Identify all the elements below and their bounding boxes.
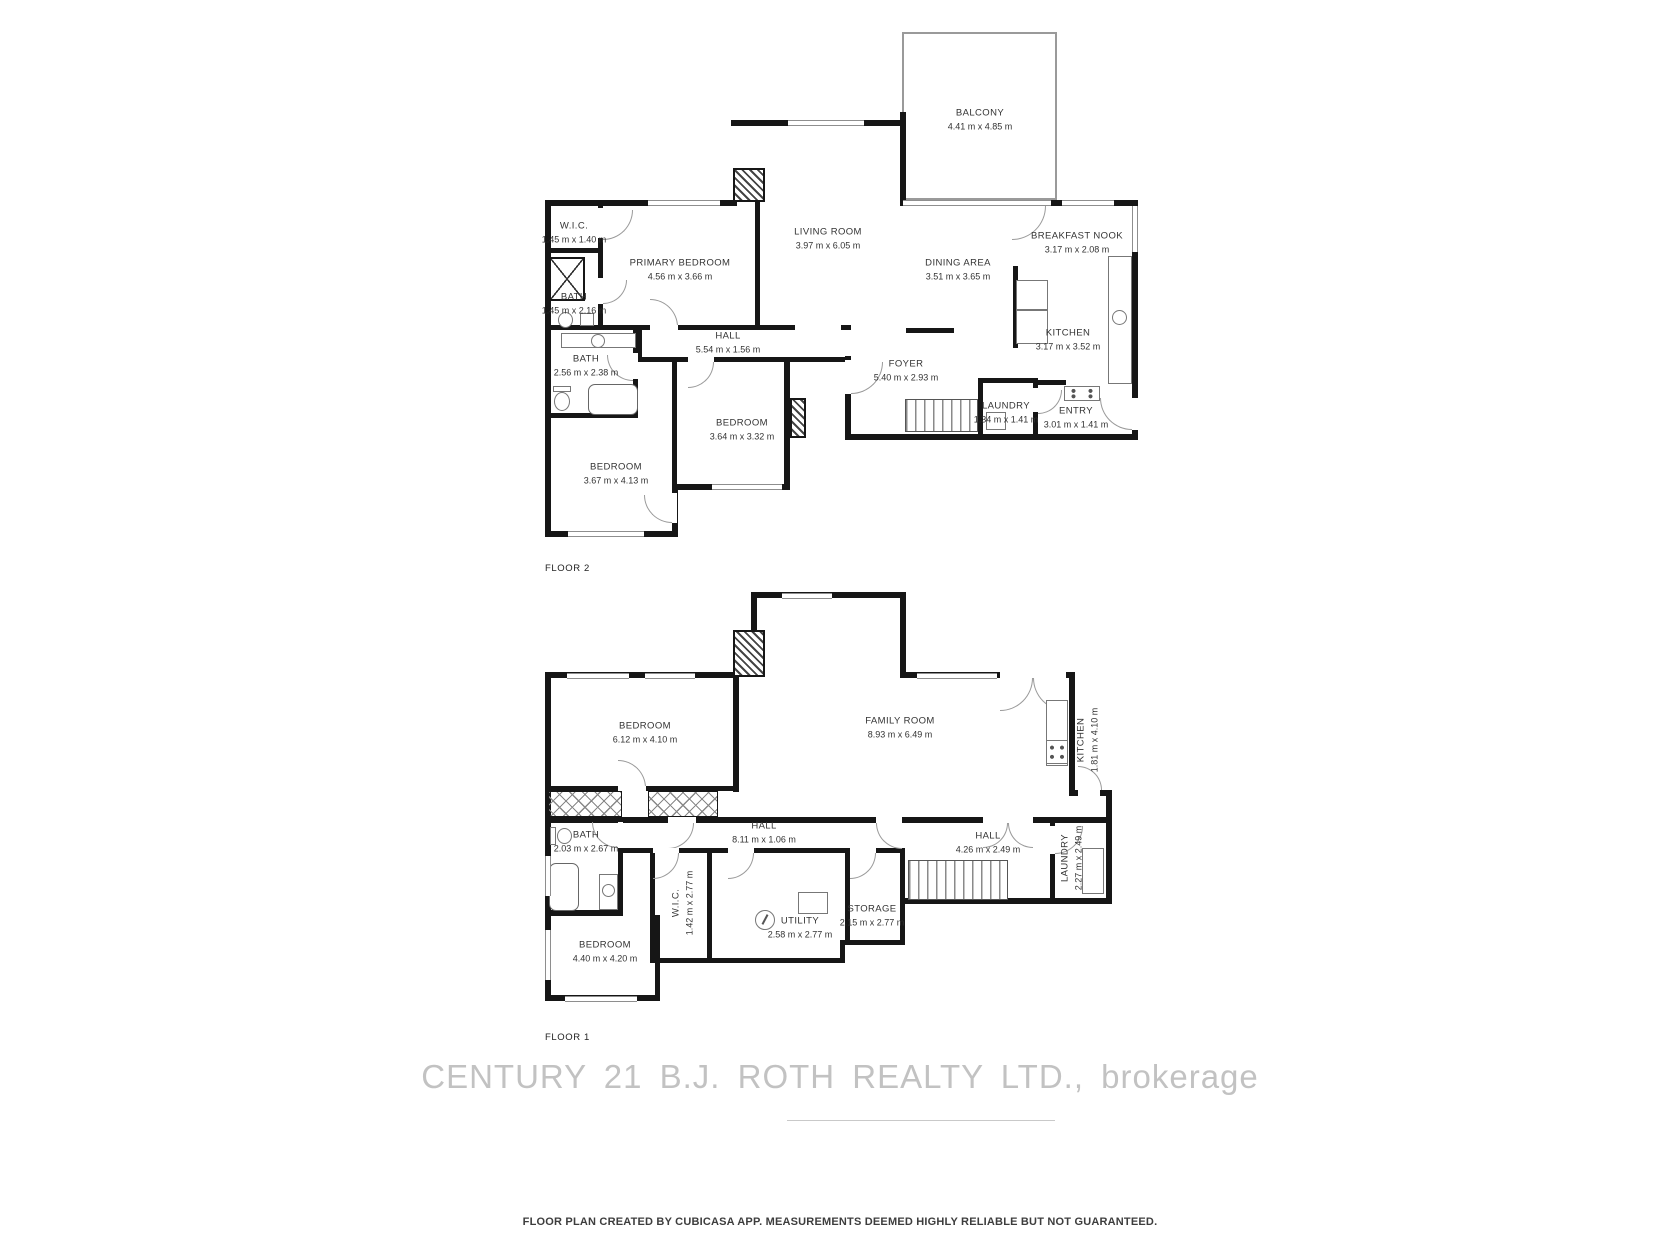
- door-opening: [688, 357, 714, 362]
- wall: [637, 357, 850, 362]
- door-arc: [603, 280, 627, 304]
- door-opening: [845, 360, 851, 394]
- door-opening: [1000, 672, 1066, 678]
- room-label: BREAKFAST NOOK 3.17 m x 2.08 m: [1031, 230, 1123, 257]
- door-opening: [672, 493, 677, 523]
- sink: [1112, 310, 1127, 325]
- door-arc: [603, 210, 633, 240]
- room-name: BATH: [542, 291, 607, 305]
- room-dims: 8.11 m x 1.06 m: [732, 833, 796, 846]
- room-label: BATH 2.03 m x 2.67 m: [554, 829, 619, 856]
- room-name: BEDROOM: [710, 417, 775, 431]
- stove: [1064, 386, 1100, 401]
- room-dims: 5.54 m x 1.56 m: [696, 343, 761, 356]
- wall: [650, 958, 845, 963]
- room-label: W.I.C. 1.42 m x 2.77 m: [670, 871, 697, 936]
- room-label: BEDROOM 3.64 m x 3.32 m: [710, 417, 775, 444]
- door-opening: [668, 817, 696, 823]
- room-dims: 1.81 m x 4.10 m: [1088, 708, 1101, 773]
- door-opening: [650, 325, 678, 330]
- room-name: BEDROOM: [573, 939, 638, 953]
- door-opening: [618, 786, 646, 791]
- room-name: BEDROOM: [613, 720, 678, 734]
- utility-box: [798, 892, 828, 914]
- room-name: FAMILY ROOM: [865, 715, 935, 729]
- room-dims: 1.45 m x 2.16 m: [542, 304, 607, 317]
- window: [782, 593, 832, 599]
- room-label: HALL 8.11 m x 1.06 m: [732, 820, 796, 847]
- room-dims: 1.34 m x 1.41 m: [974, 413, 1039, 426]
- door-opening: [618, 822, 623, 848]
- window: [568, 531, 644, 537]
- window: [788, 120, 864, 126]
- room-label: LAUNDRY 1.34 m x 1.41 m: [974, 400, 1039, 427]
- wall: [545, 248, 603, 253]
- window: [545, 856, 551, 896]
- room-name: LIVING ROOM: [794, 226, 862, 240]
- wall: [707, 848, 712, 963]
- room-name: BREAKFAST NOOK: [1031, 230, 1123, 244]
- window: [917, 673, 997, 679]
- room-name: LAUNDRY: [1059, 826, 1073, 891]
- room-name: PRIMARY BEDROOM: [630, 257, 731, 271]
- room-dims: 3.01 m x 1.41 m: [1044, 418, 1109, 431]
- door-opening: [983, 817, 1033, 823]
- window: [645, 673, 695, 679]
- door-arc: [876, 823, 902, 849]
- room-label: HALL 4.26 m x 2.49 m: [956, 830, 1021, 857]
- room-label: BATH 1.45 m x 2.16 m: [542, 291, 607, 318]
- wall: [900, 112, 906, 206]
- room-label: LIVING ROOM 3.97 m x 6.05 m: [794, 226, 862, 253]
- chimney-hatch: [733, 630, 765, 677]
- door-arc: [728, 853, 754, 879]
- floor-2-label: FLOOR 2: [545, 563, 590, 574]
- closet: [648, 791, 718, 817]
- room-dims: 5.40 m x 2.93 m: [874, 371, 939, 384]
- wall: [672, 362, 677, 487]
- brokerage-watermark: CENTURY 21 B.J. ROTH REALTY LTD., broker…: [421, 1058, 1259, 1096]
- door-arc: [668, 823, 694, 849]
- door-arc: [618, 760, 646, 788]
- room-name: BALCONY: [948, 107, 1013, 121]
- room-dims: 2.15 m x 2.77 m: [840, 916, 905, 929]
- room-name: HALL: [696, 330, 761, 344]
- door-opening: [728, 848, 754, 853]
- room-name: LAUNDRY: [974, 400, 1039, 414]
- wall: [978, 378, 1038, 383]
- wall: [733, 672, 739, 792]
- room-dims: 8.93 m x 6.49 m: [865, 728, 935, 741]
- door-opening: [1050, 826, 1055, 854]
- floor-1-label: FLOOR 1: [545, 1032, 590, 1043]
- room-label: PRIMARY BEDROOM 4.56 m x 3.66 m: [630, 257, 731, 284]
- window: [1132, 206, 1138, 252]
- room-name: W.I.C.: [670, 871, 684, 936]
- room-name: DINING AREA: [925, 257, 991, 271]
- floorplan-canvas: BALCONY 4.41 m x 4.85 m W.I.C. 1.45 m x …: [0, 0, 1680, 1260]
- sink: [602, 884, 615, 897]
- room-label: ENTRY 3.01 m x 1.41 m: [1044, 405, 1109, 432]
- room-name: UTILITY: [768, 915, 833, 929]
- room-dims: 2.27 m x 2.49 m: [1072, 826, 1085, 891]
- door-opening: [795, 325, 841, 330]
- door-opening: [633, 353, 638, 379]
- room-name: BATH: [554, 829, 619, 843]
- wall: [1106, 790, 1112, 904]
- stairs: [908, 860, 1008, 900]
- room-dims: 3.64 m x 3.32 m: [710, 430, 775, 443]
- room-name: ENTRY: [1044, 405, 1109, 419]
- room-label: LAUNDRY 2.27 m x 2.49 m: [1059, 826, 1086, 891]
- wall: [906, 328, 954, 333]
- room-label: KITCHEN 1.81 m x 4.10 m: [1075, 708, 1102, 773]
- room-dims: 3.17 m x 2.08 m: [1031, 243, 1123, 256]
- room-label: FAMILY ROOM 8.93 m x 6.49 m: [865, 715, 935, 742]
- room-label: BALCONY 4.41 m x 4.85 m: [948, 107, 1013, 134]
- window: [648, 200, 720, 206]
- room-label: STORAGE 2.15 m x 2.77 m: [840, 903, 905, 930]
- window: [567, 673, 629, 679]
- window: [545, 930, 551, 980]
- room-label: BEDROOM 6.12 m x 4.10 m: [613, 720, 678, 747]
- fridge: [1016, 280, 1048, 310]
- wall: [755, 200, 760, 327]
- stairs: [905, 399, 978, 432]
- room-dims: 6.12 m x 4.10 m: [613, 733, 678, 746]
- door-arc: [850, 853, 876, 879]
- room-label: W.I.C. 1.45 m x 1.40 m: [542, 220, 607, 247]
- room-name: W.I.C.: [542, 220, 607, 234]
- sink: [591, 334, 605, 348]
- door-opening: [1078, 790, 1100, 796]
- room-dims: 3.67 m x 4.13 m: [584, 474, 649, 487]
- room-dims: 4.41 m x 4.85 m: [948, 120, 1013, 133]
- window: [903, 200, 1051, 206]
- door-opening: [1132, 398, 1138, 430]
- room-dims: 3.51 m x 3.65 m: [925, 270, 991, 283]
- room-name: KITCHEN: [1036, 327, 1101, 341]
- room-dims: 3.97 m x 6.05 m: [794, 239, 862, 252]
- door-arc: [650, 299, 678, 327]
- window: [565, 996, 637, 1002]
- room-name: KITCHEN: [1075, 708, 1089, 773]
- wall: [845, 940, 905, 945]
- room-label: BEDROOM 3.67 m x 4.13 m: [584, 461, 649, 488]
- door-opening: [653, 848, 679, 853]
- room-dims: 1.42 m x 2.77 m: [683, 871, 696, 936]
- wall: [900, 592, 906, 678]
- room-name: STORAGE: [840, 903, 905, 917]
- room-dims: 2.03 m x 2.67 m: [554, 842, 619, 855]
- room-name: HALL: [956, 830, 1021, 844]
- room-name: BEDROOM: [584, 461, 649, 475]
- room-label: UTILITY 2.58 m x 2.77 m: [768, 915, 833, 942]
- room-dims: 2.56 m x 2.38 m: [554, 366, 619, 379]
- door-arc: [688, 362, 714, 388]
- room-name: BATH: [554, 353, 619, 367]
- room-dims: 4.26 m x 2.49 m: [956, 843, 1021, 856]
- bathtub: [588, 384, 638, 415]
- door-opening: [876, 817, 902, 823]
- toilet: [554, 392, 570, 411]
- room-dims: 4.56 m x 3.66 m: [630, 270, 731, 283]
- door-opening: [850, 848, 876, 853]
- chimney-hatch: [733, 168, 765, 202]
- wall: [1038, 380, 1066, 385]
- closet: [548, 791, 622, 817]
- room-name: FOYER: [874, 358, 939, 372]
- bathtub: [549, 863, 579, 911]
- room-dims: 1.45 m x 1.40 m: [542, 233, 607, 246]
- wall: [845, 434, 1138, 440]
- room-dims: 4.40 m x 4.20 m: [573, 952, 638, 965]
- door-opening: [845, 330, 851, 356]
- door-arc: [1000, 678, 1033, 711]
- room-label: DINING AREA 3.51 m x 3.65 m: [925, 257, 991, 284]
- door-arc: [644, 495, 672, 523]
- room-label: HALL 5.54 m x 1.56 m: [696, 330, 761, 357]
- room-label: BATH 2.56 m x 2.38 m: [554, 353, 619, 380]
- room-label: FOYER 5.40 m x 2.93 m: [874, 358, 939, 385]
- disclaimer-text: FLOOR PLAN CREATED BY CUBICASA APP. MEAS…: [523, 1216, 1158, 1228]
- room-name: HALL: [732, 820, 796, 834]
- room-dims: 2.58 m x 2.77 m: [768, 928, 833, 941]
- room-label: BEDROOM 4.40 m x 4.20 m: [573, 939, 638, 966]
- divider-line: [787, 1120, 1055, 1121]
- room-label: KITCHEN 3.17 m x 3.52 m: [1036, 327, 1101, 354]
- chimney-hatch: [790, 398, 806, 438]
- room-dims: 3.17 m x 3.52 m: [1036, 340, 1101, 353]
- window: [712, 484, 782, 490]
- stove: [1046, 740, 1068, 764]
- window: [1062, 200, 1114, 206]
